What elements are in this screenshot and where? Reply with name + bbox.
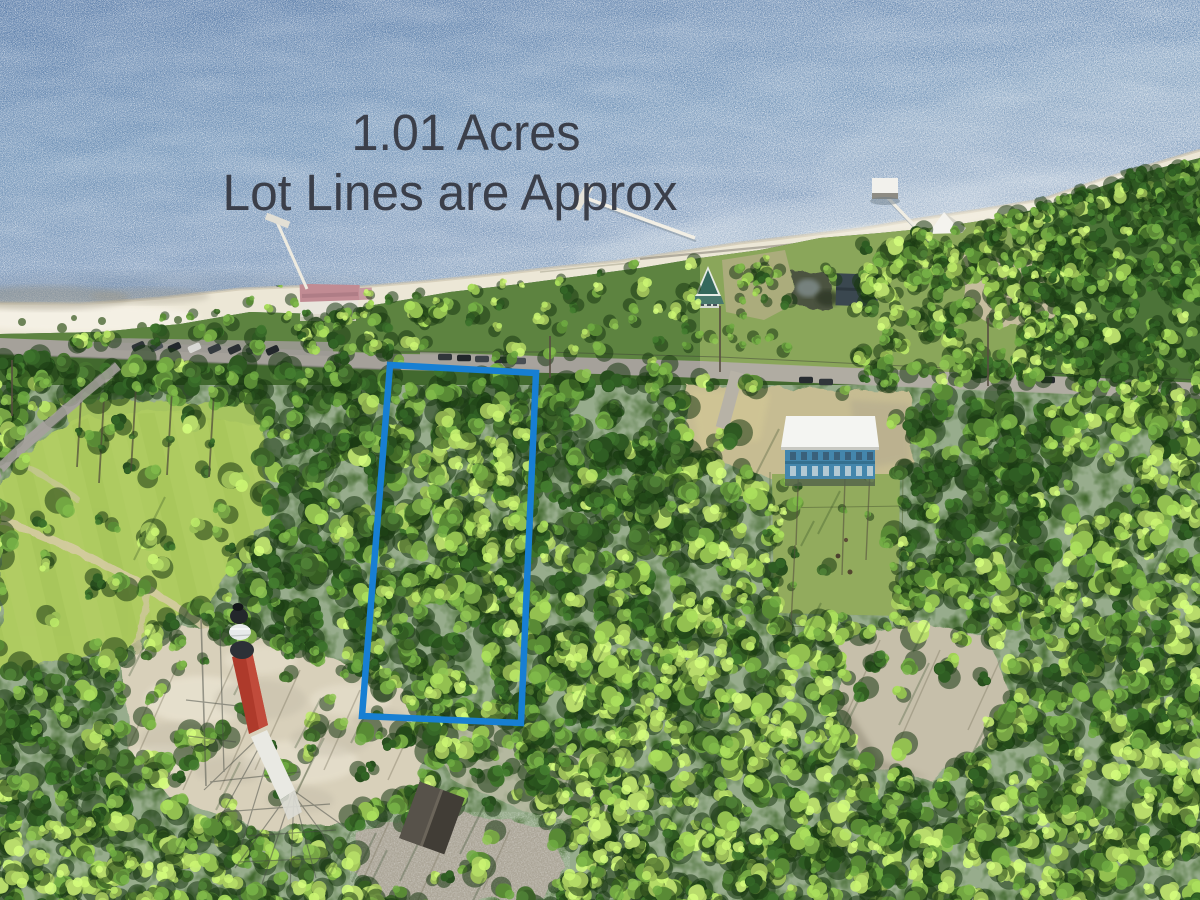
svg-text:Lot Lines are Approx: Lot Lines are Approx xyxy=(223,164,678,221)
svg-text:1.01 Acres: 1.01 Acres xyxy=(352,104,581,161)
